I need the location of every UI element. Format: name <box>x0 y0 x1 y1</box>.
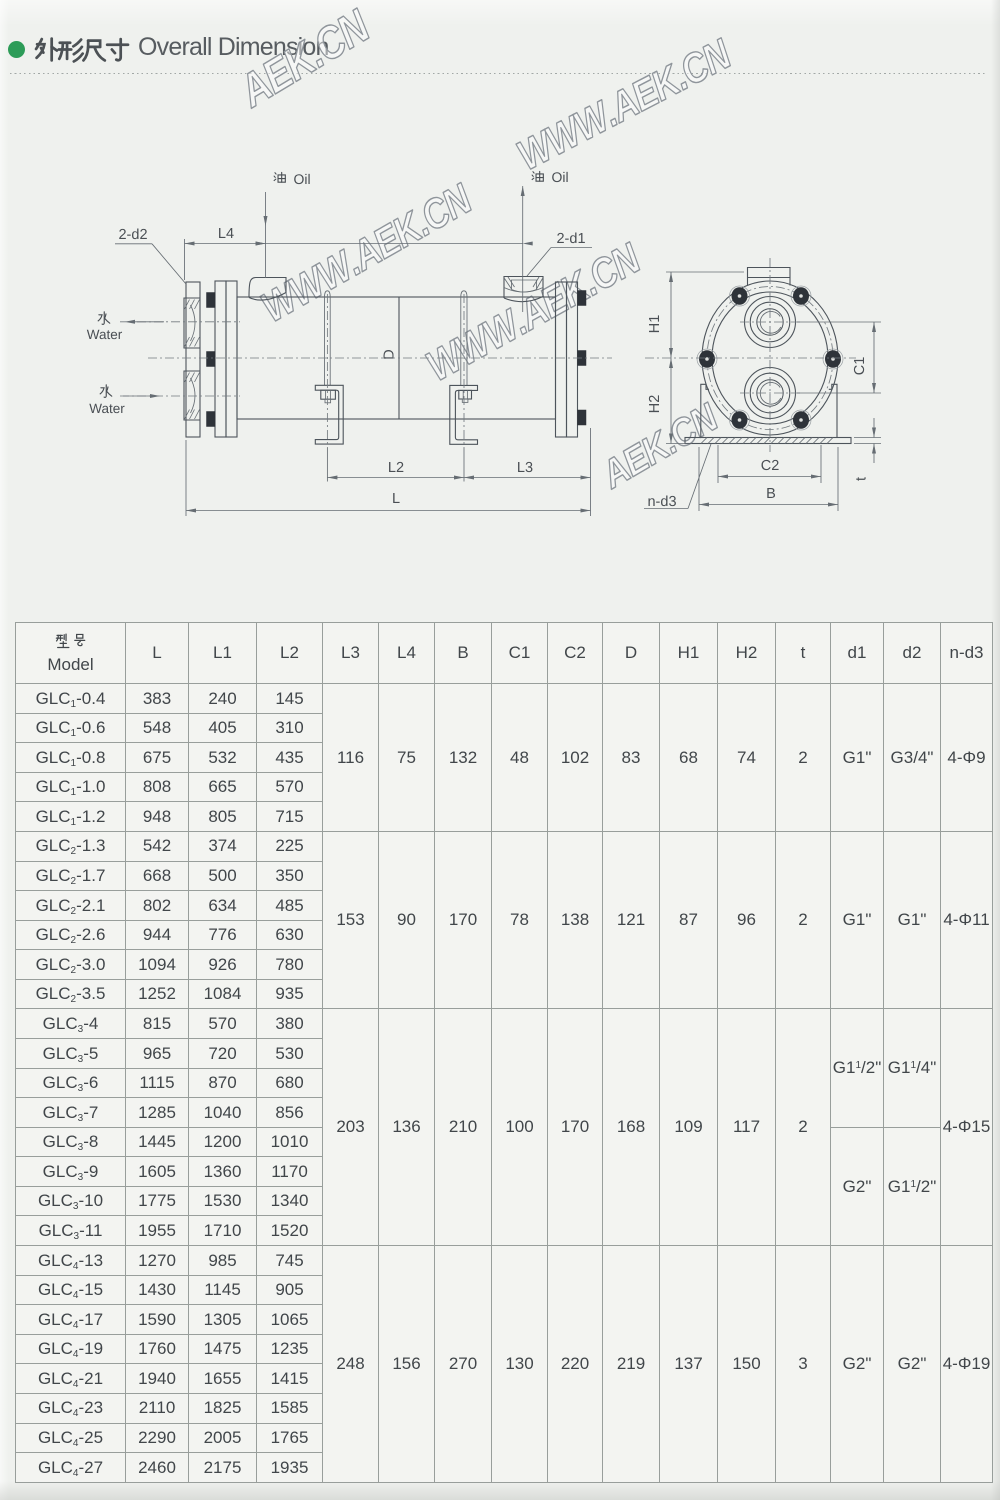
svg-text:2-d1: 2-d1 <box>556 231 585 247</box>
svg-text:L2: L2 <box>388 460 404 476</box>
svg-text:Water: Water <box>89 401 125 416</box>
svg-text:Water: Water <box>87 327 123 342</box>
svg-text:C1: C1 <box>852 357 868 376</box>
svg-text:Oil: Oil <box>551 169 568 185</box>
svg-text:n-d3: n-d3 <box>647 494 676 510</box>
svg-text:H1: H1 <box>647 315 663 334</box>
svg-text:L4: L4 <box>218 226 234 242</box>
svg-text:Oil: Oil <box>293 171 310 187</box>
svg-text:L3: L3 <box>517 460 533 476</box>
svg-text:t: t <box>854 477 870 481</box>
svg-text:L: L <box>392 491 400 507</box>
svg-text:C2: C2 <box>761 458 780 474</box>
svg-text:H2: H2 <box>647 395 663 414</box>
svg-text:2-d2: 2-d2 <box>118 227 147 243</box>
svg-text:B: B <box>766 486 776 502</box>
